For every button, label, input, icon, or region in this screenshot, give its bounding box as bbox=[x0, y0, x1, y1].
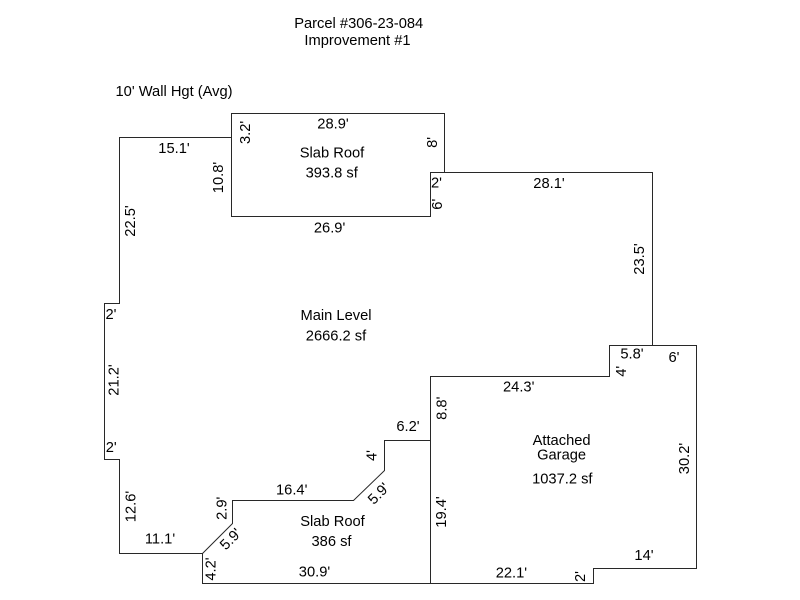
svg-text:26.9': 26.9' bbox=[314, 220, 346, 236]
svg-text:2666.2 sf: 2666.2 sf bbox=[306, 329, 367, 345]
svg-text:Garage: Garage bbox=[537, 448, 586, 464]
svg-text:5.8': 5.8' bbox=[620, 347, 643, 363]
svg-text:2': 2' bbox=[431, 176, 442, 192]
svg-text:Slab Roof: Slab Roof bbox=[300, 514, 365, 530]
svg-text:23.5': 23.5' bbox=[632, 243, 648, 275]
svg-text:6.2': 6.2' bbox=[396, 419, 419, 435]
svg-text:30.9': 30.9' bbox=[299, 565, 331, 581]
svg-text:Improvement #1: Improvement #1 bbox=[304, 33, 410, 49]
svg-text:386 sf: 386 sf bbox=[311, 534, 352, 550]
svg-text:Parcel #306-23-084: Parcel #306-23-084 bbox=[294, 16, 423, 32]
svg-text:5.9': 5.9' bbox=[217, 526, 245, 554]
svg-text:6': 6' bbox=[669, 350, 680, 366]
svg-text:2': 2' bbox=[106, 440, 117, 456]
svg-text:22.1': 22.1' bbox=[496, 566, 528, 582]
svg-text:6': 6' bbox=[430, 199, 446, 210]
svg-text:10.8': 10.8' bbox=[211, 162, 227, 194]
svg-text:Slab Roof: Slab Roof bbox=[300, 146, 365, 162]
svg-text:14': 14' bbox=[634, 548, 653, 564]
svg-text:4.2': 4.2' bbox=[204, 557, 220, 580]
svg-text:8.8': 8.8' bbox=[434, 396, 450, 419]
svg-text:12.6': 12.6' bbox=[124, 491, 140, 523]
svg-text:15.1': 15.1' bbox=[158, 141, 190, 157]
svg-text:11.1': 11.1' bbox=[145, 532, 175, 548]
svg-text:30.2': 30.2' bbox=[677, 443, 693, 475]
svg-text:16.4': 16.4' bbox=[276, 483, 308, 499]
svg-text:393.8 sf: 393.8 sf bbox=[306, 166, 359, 182]
svg-text:28.1': 28.1' bbox=[533, 176, 565, 192]
svg-text:3.2': 3.2' bbox=[238, 121, 254, 144]
svg-text:4': 4' bbox=[365, 450, 381, 461]
svg-text:8': 8' bbox=[425, 137, 441, 148]
svg-text:24.3': 24.3' bbox=[503, 380, 535, 396]
svg-text:2.9': 2.9' bbox=[214, 496, 230, 519]
svg-text:1037.2 sf: 1037.2 sf bbox=[532, 472, 593, 488]
svg-text:21.2': 21.2' bbox=[107, 364, 123, 396]
svg-text:Main Level: Main Level bbox=[300, 308, 371, 324]
svg-text:2': 2' bbox=[106, 307, 117, 323]
svg-text:22.5': 22.5' bbox=[123, 205, 139, 237]
svg-text:10' Wall Hgt (Avg): 10' Wall Hgt (Avg) bbox=[116, 84, 233, 100]
svg-text:28.9': 28.9' bbox=[317, 117, 349, 133]
svg-text:19.4': 19.4' bbox=[434, 496, 450, 528]
svg-text:2': 2' bbox=[573, 571, 589, 582]
svg-text:4': 4' bbox=[614, 366, 630, 377]
